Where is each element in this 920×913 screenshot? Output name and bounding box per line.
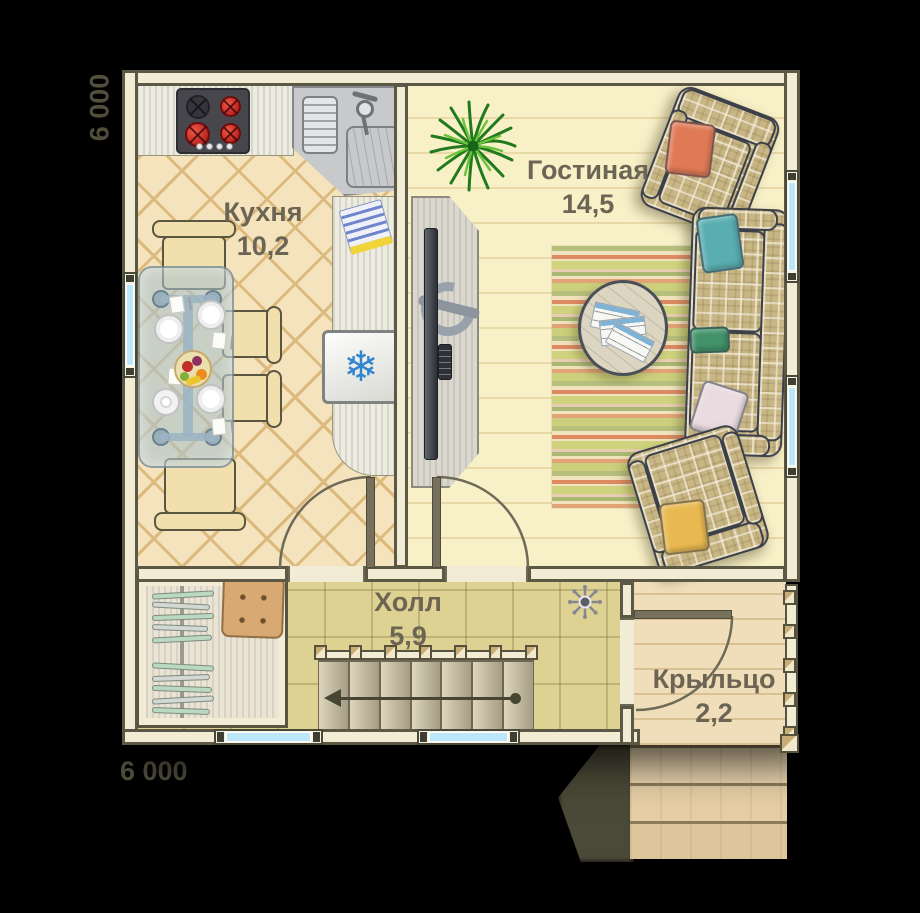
plate-icon bbox=[196, 300, 226, 330]
wall-porch-segment bbox=[620, 582, 634, 618]
floor-plan: ❄ bbox=[122, 70, 800, 745]
porch-corner-post bbox=[780, 734, 799, 753]
stove-icon bbox=[176, 88, 250, 154]
porch-step bbox=[630, 783, 787, 821]
sofa bbox=[684, 206, 791, 457]
window-cap bbox=[126, 275, 134, 282]
floor-plan-canvas: 6 000 6 000 bbox=[0, 0, 920, 913]
living-label: Гостиная 14,5 bbox=[508, 154, 668, 222]
stove-knob bbox=[226, 143, 233, 150]
chair-back bbox=[266, 306, 282, 364]
kitchen-label: Кухня 10,2 bbox=[183, 196, 343, 264]
window-glass bbox=[429, 732, 508, 742]
living-door-swing bbox=[435, 475, 530, 570]
window-glass bbox=[126, 284, 134, 366]
wall-left bbox=[122, 70, 138, 745]
window bbox=[214, 729, 323, 745]
fruit bbox=[192, 356, 202, 366]
tv-stand bbox=[411, 196, 479, 488]
porch-door bbox=[634, 610, 732, 619]
porch-name: Крыльцо bbox=[634, 663, 794, 697]
dimension-bottom: 6 000 bbox=[120, 756, 188, 787]
window bbox=[123, 272, 137, 378]
plate-icon bbox=[152, 388, 180, 416]
window-cap bbox=[420, 732, 427, 742]
pillow-orange bbox=[664, 119, 716, 178]
remote-icon bbox=[438, 344, 452, 380]
kitchen-name: Кухня bbox=[183, 196, 343, 230]
window-cap bbox=[788, 273, 796, 280]
window-cap bbox=[510, 732, 517, 742]
fridge-icon: ❄ bbox=[322, 330, 400, 404]
stove-knob bbox=[216, 143, 223, 150]
tv-icon bbox=[424, 228, 438, 460]
wall-porch-segment bbox=[620, 706, 634, 745]
porch-step bbox=[630, 745, 787, 783]
pillow-yellow bbox=[658, 499, 710, 556]
window-cap bbox=[788, 378, 796, 385]
kitchen-door-swing bbox=[278, 475, 373, 570]
napkin-icon bbox=[211, 417, 227, 435]
hall-area: 5,9 bbox=[328, 620, 488, 654]
hanger-icon bbox=[152, 707, 210, 715]
porch-label: Крыльцо 2,2 bbox=[634, 663, 794, 731]
living-door bbox=[432, 477, 441, 568]
porch-step bbox=[630, 821, 787, 859]
hall-name: Холл bbox=[328, 586, 488, 620]
pillow-teal bbox=[695, 213, 744, 274]
hanger-icon bbox=[152, 674, 210, 682]
porch-door-opening bbox=[620, 618, 634, 706]
snowflake-icon: ❄ bbox=[343, 346, 378, 388]
window-cap bbox=[788, 468, 796, 475]
stove-knob bbox=[196, 143, 203, 150]
hall-label: Холл 5,9 bbox=[328, 586, 488, 654]
plate-icon bbox=[196, 384, 226, 414]
sink-basin bbox=[346, 126, 400, 188]
window-glass bbox=[788, 182, 796, 271]
plate-icon bbox=[154, 314, 184, 344]
wall-bottom bbox=[122, 729, 640, 745]
wall-top bbox=[122, 70, 800, 86]
railing-post bbox=[314, 645, 327, 660]
dining-table bbox=[138, 266, 234, 468]
hanger-icon bbox=[152, 685, 212, 693]
window bbox=[417, 729, 520, 745]
steps-shadow bbox=[558, 745, 634, 862]
window bbox=[785, 375, 799, 478]
window-glass bbox=[788, 387, 796, 466]
kitchen-area: 10,2 bbox=[183, 230, 343, 264]
window-cap bbox=[126, 368, 134, 375]
coat-rack-icon bbox=[565, 582, 605, 622]
pillow-green bbox=[689, 326, 730, 353]
window-cap bbox=[217, 732, 224, 742]
porch-area: 2,2 bbox=[634, 697, 794, 731]
stove-knob bbox=[206, 143, 213, 150]
wall-hall-segment bbox=[136, 566, 288, 582]
porch-baluster bbox=[783, 624, 796, 639]
stair-direction-line bbox=[338, 697, 516, 700]
fruit-bowl-icon bbox=[174, 350, 212, 388]
window-cap bbox=[313, 732, 320, 742]
wall-hall-segment bbox=[365, 566, 445, 582]
kitchen-door bbox=[366, 477, 375, 568]
porch-steps bbox=[630, 745, 787, 859]
stair-direction-start bbox=[510, 693, 521, 704]
window-cap bbox=[788, 173, 796, 180]
stair-direction-arrow-icon bbox=[324, 689, 341, 707]
chair-back bbox=[266, 370, 282, 428]
hanger-icon bbox=[152, 613, 214, 621]
chair-back bbox=[154, 512, 246, 531]
ottoman bbox=[221, 575, 285, 639]
window-glass bbox=[226, 732, 311, 742]
window bbox=[785, 170, 799, 283]
hanger-icon bbox=[152, 624, 208, 632]
napkin-icon bbox=[169, 295, 185, 314]
burner-on-icon bbox=[220, 123, 241, 144]
porch-baluster bbox=[783, 590, 796, 605]
living-name: Гостиная bbox=[508, 154, 668, 188]
railing-post bbox=[525, 645, 538, 660]
napkin-icon bbox=[211, 331, 227, 349]
wall-kitchen-living bbox=[394, 84, 408, 568]
railing-post bbox=[489, 645, 502, 660]
burner-off-icon bbox=[186, 95, 210, 119]
living-area: 14,5 bbox=[508, 188, 668, 222]
burner-on-icon bbox=[220, 96, 241, 117]
wall-right bbox=[784, 70, 800, 582]
dimension-left: 6 000 bbox=[85, 43, 116, 173]
magazines bbox=[592, 306, 662, 366]
wall-hall-segment bbox=[528, 566, 786, 582]
drying-rack bbox=[302, 96, 338, 154]
